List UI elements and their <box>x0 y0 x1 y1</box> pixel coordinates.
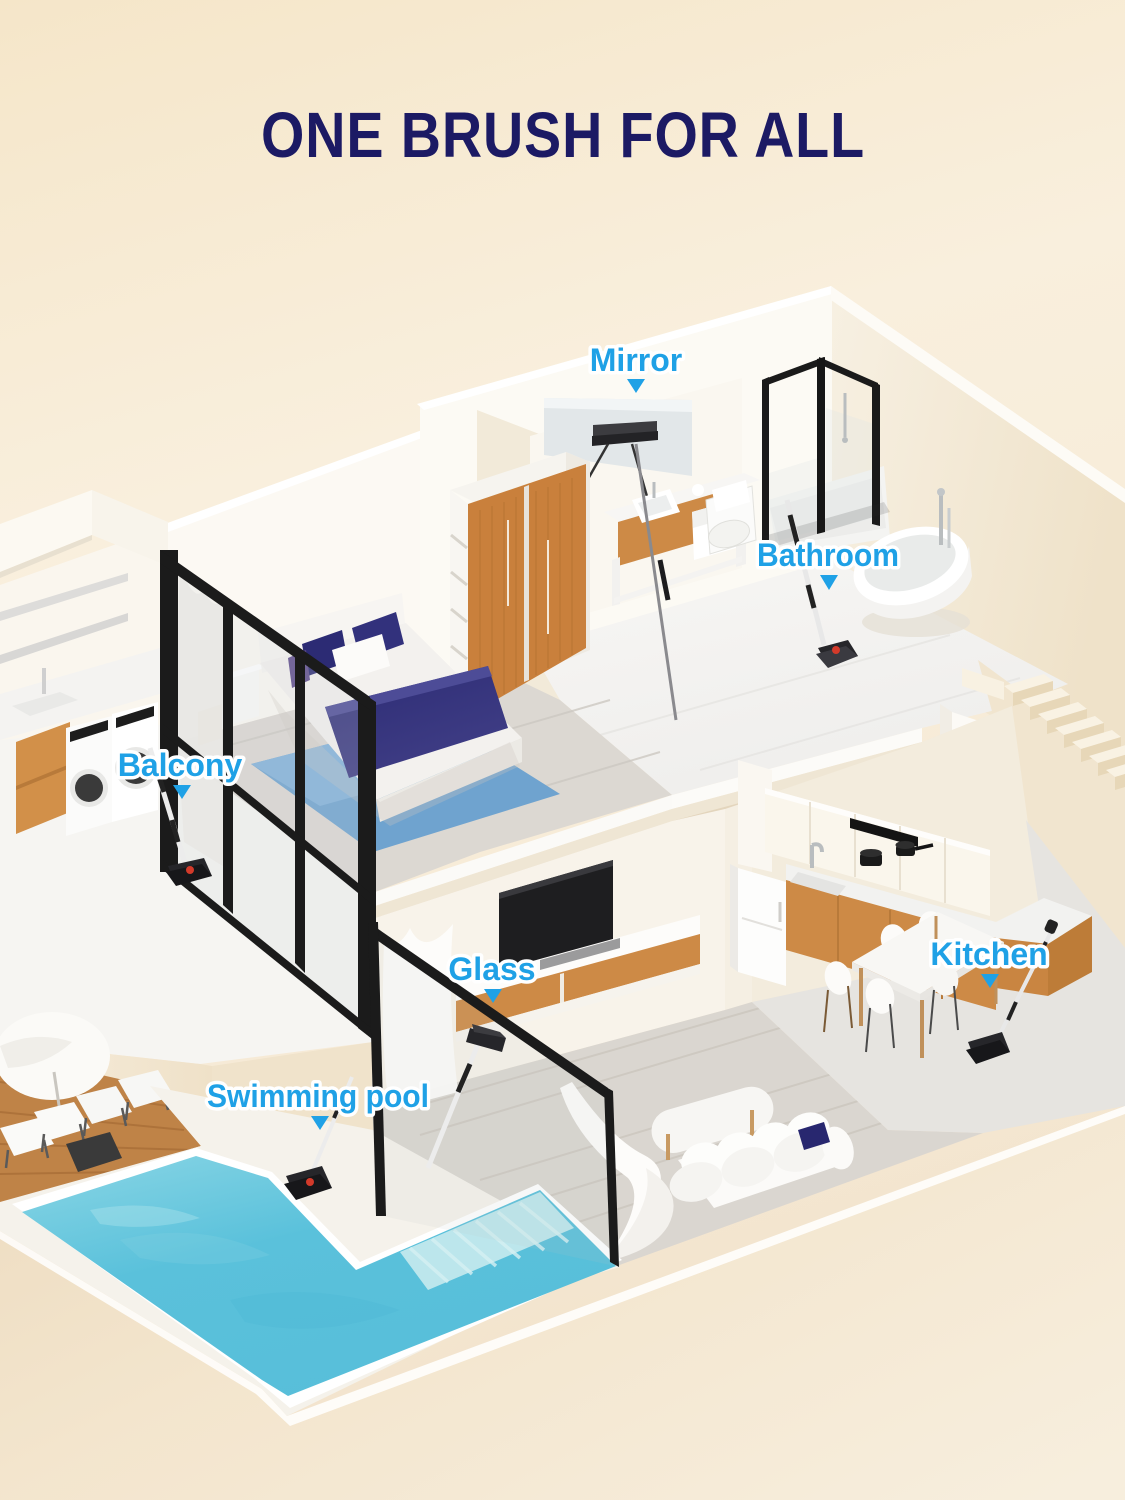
svg-text:Glass: Glass <box>448 951 535 987</box>
svg-text:Kitchen: Kitchen <box>930 936 1047 972</box>
svg-text:Balcony: Balcony <box>118 747 243 783</box>
svg-text:Bathroom: Bathroom <box>757 537 899 573</box>
svg-text:Mirror: Mirror <box>590 342 682 378</box>
svg-text:Swimming pool: Swimming pool <box>207 1078 429 1114</box>
svg-text:ONE BRUSH FOR ALL: ONE BRUSH FOR ALL <box>261 99 865 171</box>
